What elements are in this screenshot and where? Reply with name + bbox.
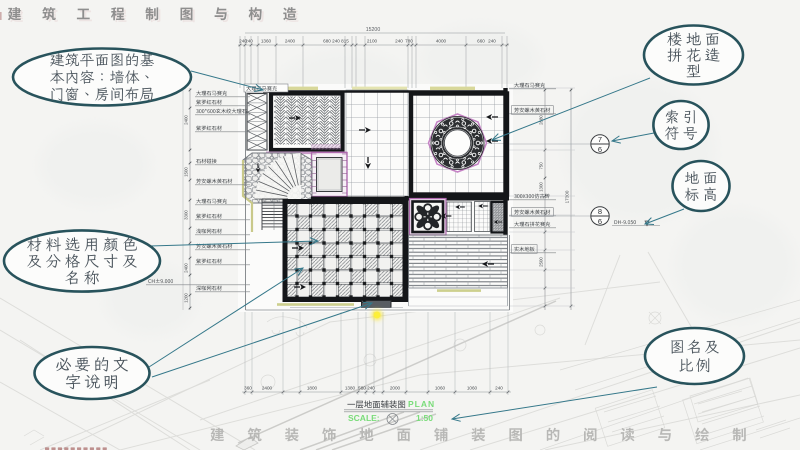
svg-text:7: 7: [598, 135, 602, 144]
svg-text:360: 360: [244, 385, 252, 390]
svg-text:17300: 17300: [565, 190, 570, 203]
svg-text:6: 6: [598, 145, 602, 154]
svg-text:240: 240: [395, 39, 403, 44]
svg-text:1300: 1300: [539, 182, 544, 192]
svg-text:1200: 1200: [184, 293, 189, 303]
svg-text:6: 6: [598, 217, 602, 226]
svg-text:1060: 1060: [467, 385, 478, 390]
svg-text:2100: 2100: [367, 39, 378, 44]
svg-text:240: 240: [245, 39, 253, 44]
svg-text:240: 240: [495, 385, 503, 390]
svg-text:2400: 2400: [184, 115, 189, 125]
svg-text:1060: 1060: [435, 385, 446, 390]
svg-text:660: 660: [477, 39, 485, 44]
svg-text:580: 580: [358, 385, 366, 390]
svg-text:2400: 2400: [262, 385, 273, 390]
svg-text:240: 240: [367, 385, 375, 390]
svg-text:1380: 1380: [345, 385, 356, 390]
svg-text:PLAN: PLAN: [408, 399, 435, 409]
svg-text:2400: 2400: [184, 263, 189, 273]
svg-text:2400: 2400: [285, 39, 296, 44]
svg-text:1:50: 1:50: [416, 413, 433, 423]
svg-text:8: 8: [598, 207, 602, 216]
svg-text:815: 815: [341, 39, 349, 44]
svg-text:680: 680: [323, 39, 331, 44]
svg-text:1800: 1800: [307, 385, 318, 390]
svg-text:4000: 4000: [436, 39, 447, 44]
svg-text:780: 780: [405, 39, 413, 44]
svg-text:15200: 15200: [366, 27, 381, 33]
svg-text:2500: 2500: [539, 257, 544, 267]
svg-text:SCALE:: SCALE:: [348, 413, 380, 423]
svg-text:240: 240: [332, 39, 340, 44]
svg-text:2000: 2000: [390, 385, 401, 390]
svg-text:3300: 3300: [184, 210, 189, 220]
svg-text:1500: 1500: [184, 167, 189, 177]
svg-text:240: 240: [488, 39, 496, 44]
svg-text:1360: 1360: [261, 39, 272, 44]
svg-text:750: 750: [539, 162, 544, 170]
